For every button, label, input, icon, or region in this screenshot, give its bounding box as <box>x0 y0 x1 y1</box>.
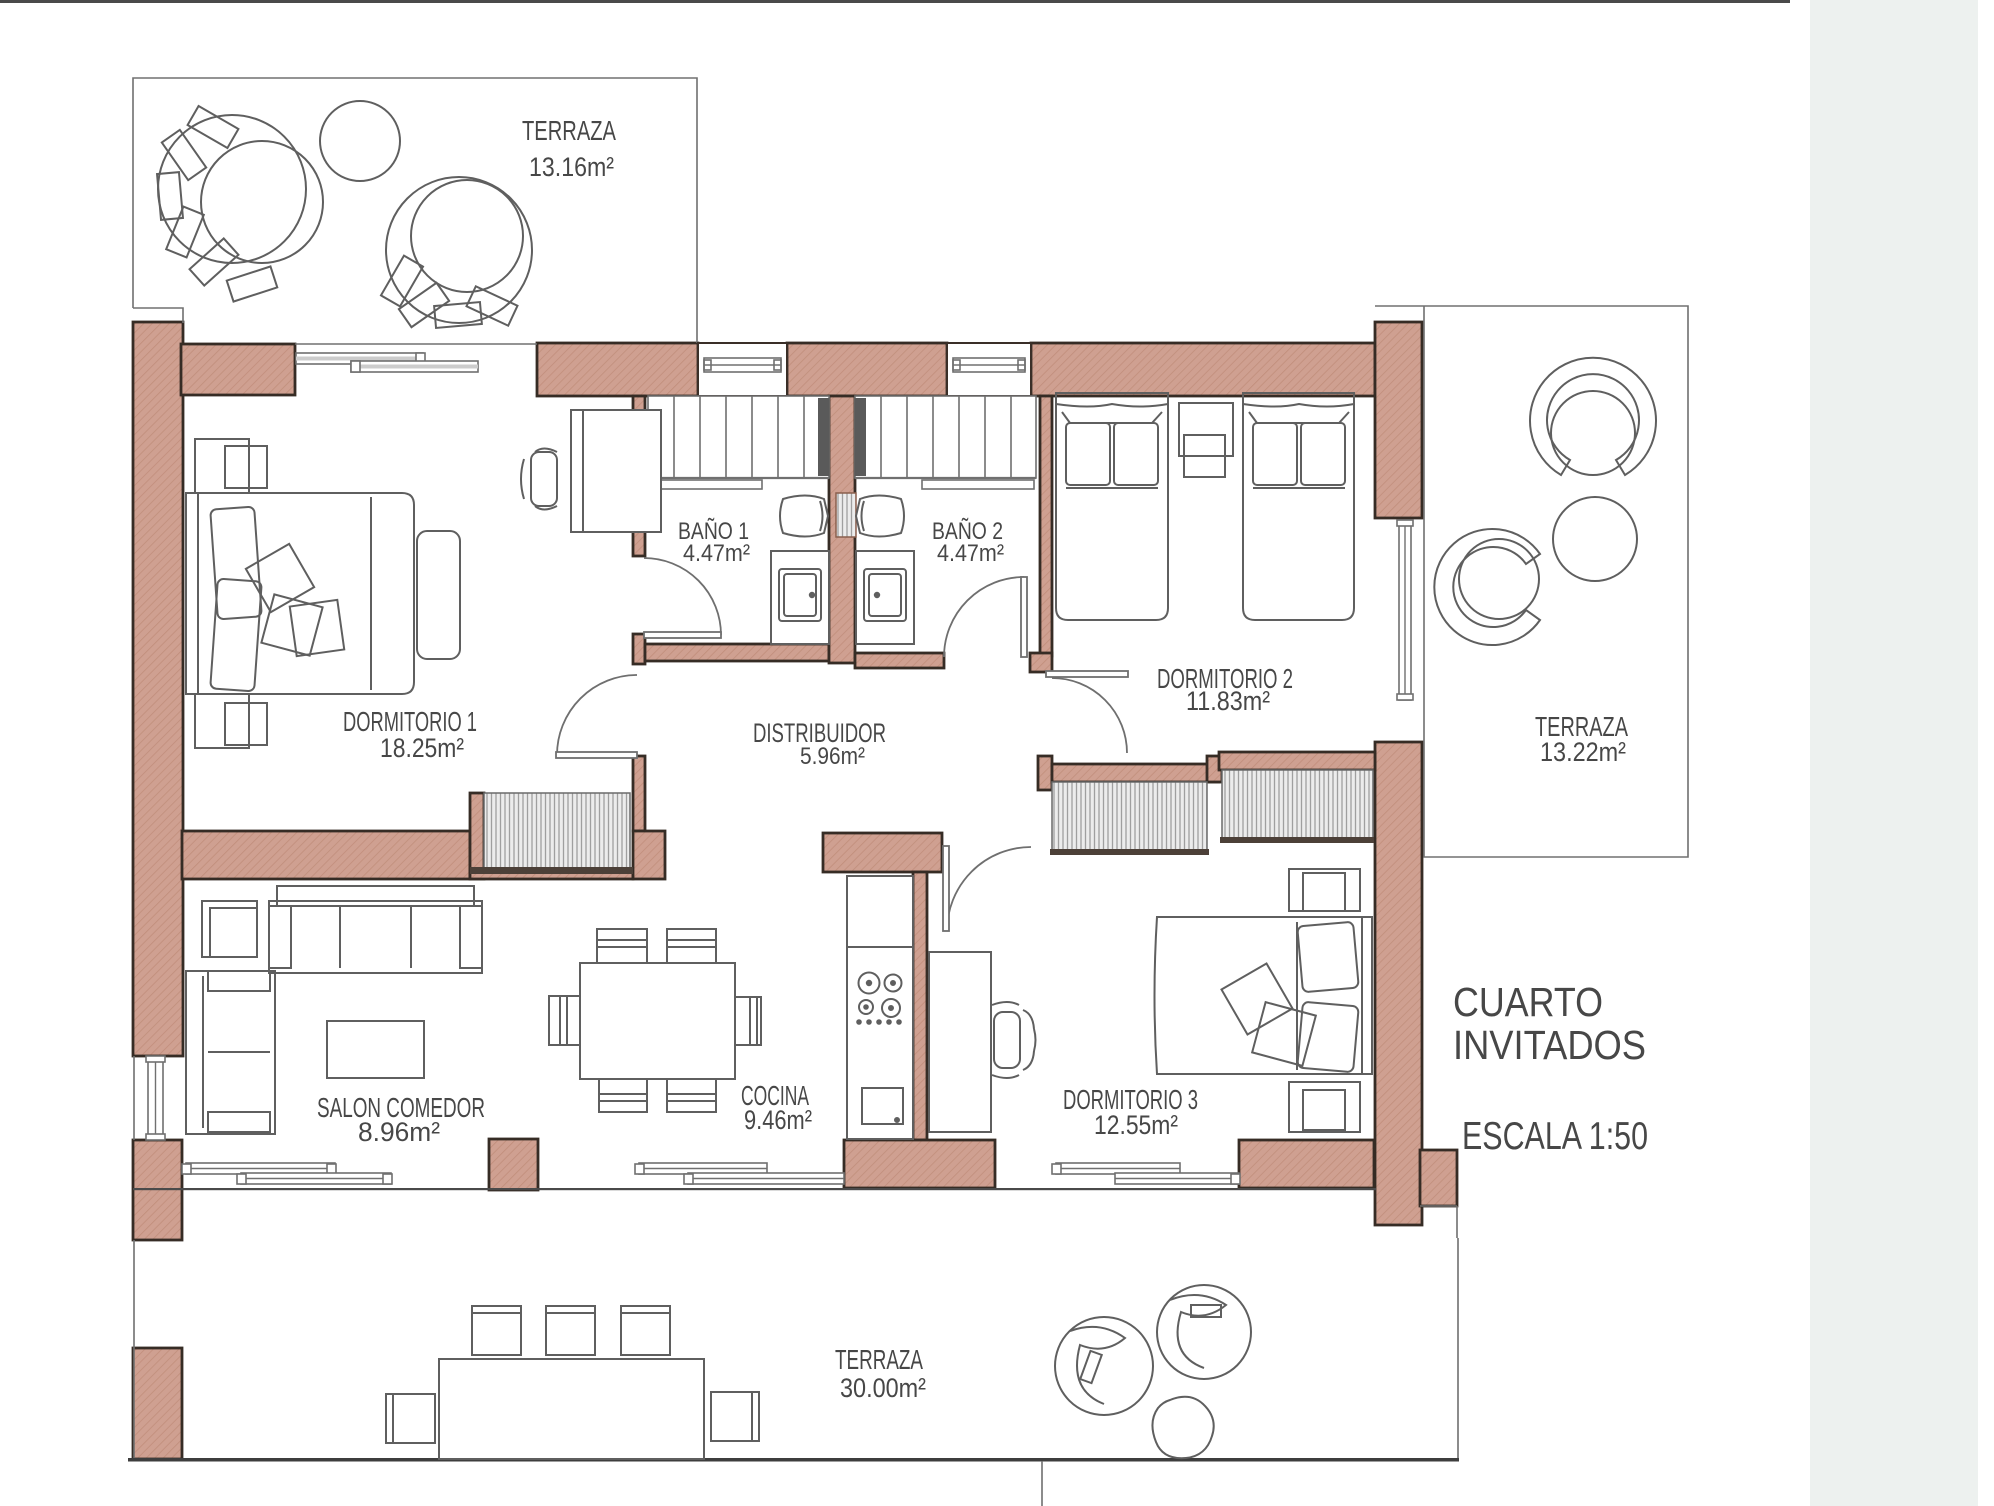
svg-text:11.83m²: 11.83m² <box>1186 686 1270 716</box>
svg-text:TERRAZA: TERRAZA <box>835 1344 923 1375</box>
svg-text:CUARTO: CUARTO <box>1453 979 1603 1025</box>
svg-text:18.25m²: 18.25m² <box>380 733 464 763</box>
svg-text:13.16m²: 13.16m² <box>529 152 614 182</box>
svg-text:4.47m²: 4.47m² <box>683 540 750 567</box>
svg-text:5.96m²: 5.96m² <box>800 743 865 770</box>
svg-text:8.96m²: 8.96m² <box>358 1117 440 1147</box>
svg-text:INVITADOS: INVITADOS <box>1453 1022 1646 1068</box>
svg-text:TERRAZA: TERRAZA <box>522 115 616 146</box>
svg-text:13.22m²: 13.22m² <box>1540 737 1626 767</box>
svg-text:4.47m²: 4.47m² <box>937 540 1004 567</box>
svg-text:12.55m²: 12.55m² <box>1094 1110 1178 1140</box>
svg-text:ESCALA 1:50: ESCALA 1:50 <box>1462 1115 1648 1158</box>
svg-text:30.00m²: 30.00m² <box>840 1373 926 1403</box>
svg-text:9.46m²: 9.46m² <box>744 1105 812 1135</box>
